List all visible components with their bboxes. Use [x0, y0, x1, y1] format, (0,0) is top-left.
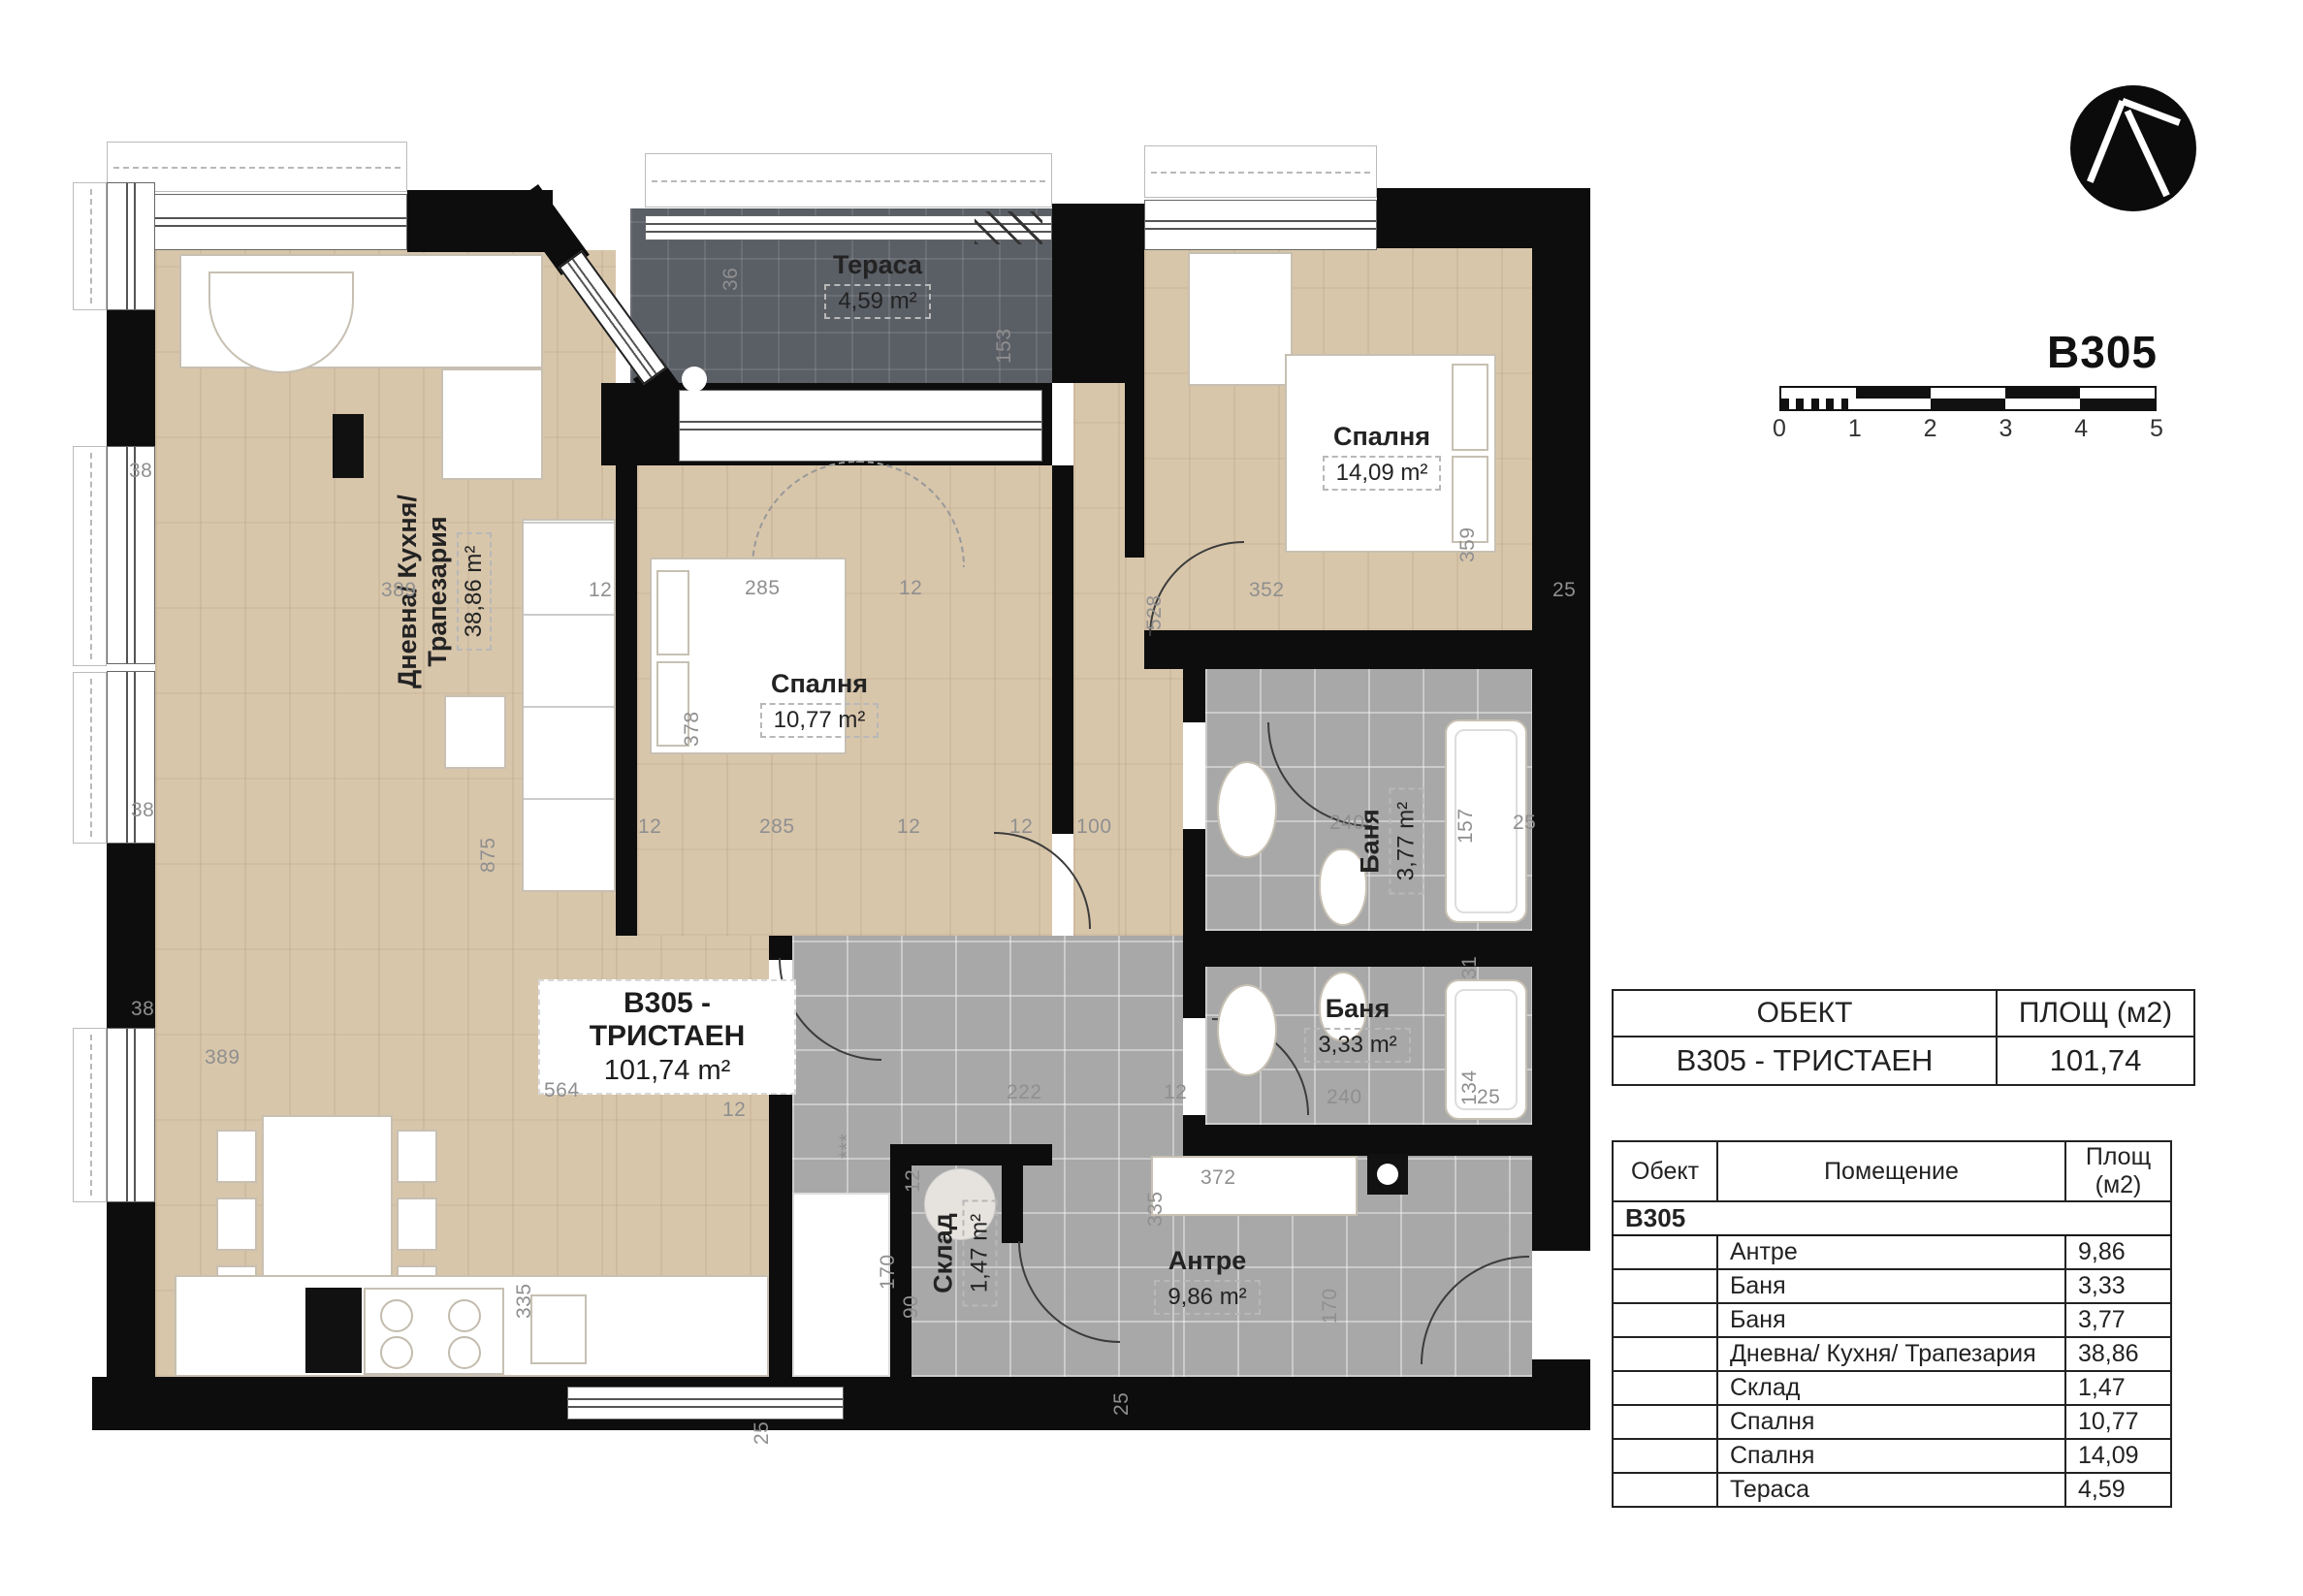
rooms-table-row: Баня3,77 — [1613, 1303, 2171, 1337]
bedroom-right-window — [1144, 200, 1377, 250]
dimension-label: 36 — [720, 268, 741, 291]
burner-icon — [380, 1299, 413, 1332]
wall — [769, 1062, 792, 1377]
dimension-label: 359 — [1457, 527, 1478, 562]
wall — [1052, 465, 1073, 834]
dimension-label: 170 — [1320, 1288, 1340, 1324]
rooms-header-area: Площ (м2) — [2065, 1141, 2171, 1201]
dimension-label: 38 — [131, 999, 154, 1019]
shaft-circle — [1377, 1164, 1398, 1185]
rooms-cell-name: Антре — [1717, 1235, 2065, 1269]
rooms-cell-object — [1613, 1405, 1717, 1439]
dimension-label: 25 — [1477, 1087, 1500, 1107]
summary-header-area: ПЛОЩ (м2) — [1997, 990, 2194, 1037]
dimension-label: 372 — [1200, 1167, 1236, 1188]
window — [107, 1028, 155, 1202]
room-name: Баня — [1251, 994, 1464, 1024]
rooms-cell-object — [1613, 1439, 1717, 1473]
room-name: Спалня — [1236, 422, 1527, 452]
dimension-label: 12 — [1164, 1082, 1187, 1102]
chair — [216, 1197, 257, 1251]
dimension-label: 240 — [1327, 1087, 1362, 1107]
burner-icon — [448, 1336, 481, 1369]
chair — [216, 1130, 257, 1183]
dimension-label: 389 — [205, 1047, 240, 1068]
dimension-label: 157 — [1455, 808, 1476, 844]
wall — [1144, 630, 1532, 669]
rooms-cell-name: Баня — [1717, 1303, 2065, 1337]
dimension-label: 12 — [897, 816, 920, 837]
rooms-cell-name: Тераса — [1717, 1473, 2065, 1507]
dimension-label: 12 — [638, 816, 661, 837]
dimension-label: 12 — [1009, 816, 1033, 837]
rooms-cell-area: 3,33 — [2065, 1269, 2171, 1303]
room-name: Спалня — [698, 669, 941, 699]
corridor-floor — [1073, 383, 1125, 936]
hall-wardrobe — [1151, 1156, 1358, 1216]
dimension-label: 378 — [682, 711, 702, 747]
dimension-label: 12 — [899, 578, 922, 598]
dimension-label: 240 — [1329, 813, 1365, 833]
room-area: 3,77 m² — [1390, 788, 1424, 894]
shaft — [1367, 1154, 1408, 1195]
window-sill — [73, 182, 107, 310]
floorplan-page: Тераса 4,59 m² Спалня 14,09 m² Спалня 10… — [0, 0, 2303, 1596]
plinth-vent — [567, 1387, 844, 1420]
pantry-niche — [792, 1193, 890, 1377]
room-area: 10,77 m² — [760, 703, 880, 738]
dimension-label: 90 — [901, 1295, 921, 1319]
wall — [107, 1202, 155, 1382]
dimension-label: 153 — [994, 328, 1014, 364]
dimension-label: 12 — [903, 1169, 923, 1193]
dimension-label: 25 — [1111, 1392, 1132, 1416]
rooms-group-label: B305 — [1613, 1201, 2171, 1235]
rooms-cell-object — [1613, 1337, 1717, 1371]
wall — [1052, 204, 1144, 383]
rooms-cell-area: 9,86 — [2065, 1235, 2171, 1269]
scale-tick-label: 0 — [1773, 415, 1786, 443]
room-label-bath-upper: Баня 3,77 m² — [1356, 764, 1457, 919]
wall — [890, 1144, 1052, 1165]
rooms-cell-object — [1613, 1371, 1717, 1405]
rooms-cell-area: 3,77 — [2065, 1303, 2171, 1337]
peak-circle-logo-icon — [2068, 83, 2198, 213]
rooms-table-row: Склад1,47 — [1613, 1371, 2171, 1405]
kitchen-flue — [333, 414, 364, 478]
rooms-header-object: Обект — [1613, 1141, 1717, 1201]
wall — [1183, 1125, 1532, 1156]
summary-table: ОБЕКТ ПЛОЩ (м2) B305 - ТРИСТАЕН 101,74 — [1612, 989, 2195, 1086]
dimension-label: 100 — [1076, 816, 1112, 837]
room-area: 38,86 m² — [457, 532, 492, 652]
summary-header-object: ОБЕКТ — [1613, 990, 1997, 1037]
scale-bar-ticks: 012345 — [1779, 415, 2157, 444]
entry-door-gap — [1532, 1251, 1590, 1359]
scale-tick-label: 4 — [2074, 415, 2088, 443]
scale-tick-label: 3 — [1999, 415, 2012, 443]
dimension-label: 25 — [752, 1421, 772, 1445]
dimension-label: 31 — [1459, 956, 1480, 979]
rooms-cell-name: Спалня — [1717, 1439, 2065, 1473]
scale-bar-row-bottom — [1781, 399, 2155, 409]
oven — [305, 1288, 362, 1373]
scale-tick-label: 1 — [1848, 415, 1862, 443]
rooms-cell-name: Склад — [1717, 1371, 2065, 1405]
room-area: 1,47 m² — [963, 1200, 998, 1306]
room-name: Склад — [929, 1171, 959, 1336]
dimension-label: 12 — [722, 1100, 746, 1120]
window — [107, 182, 155, 310]
unit-title: B305 — [1973, 326, 2158, 378]
scale-tick-label: 2 — [1924, 415, 1937, 443]
rooms-table-row: Антре9,86 — [1613, 1235, 2171, 1269]
wall — [769, 936, 792, 960]
room-label-hall: Антре 9,86 m² — [1081, 1246, 1333, 1315]
dimension-label: 38 — [131, 800, 154, 820]
pillow — [656, 570, 689, 655]
room-name: Антре — [1081, 1246, 1333, 1276]
scale-bar — [1779, 386, 2157, 411]
room-area: 9,86 m² — [1154, 1280, 1260, 1315]
dimension-label: 25 — [1513, 813, 1536, 833]
wall — [1532, 188, 1590, 1251]
rooms-cell-name: Баня — [1717, 1269, 2065, 1303]
rooms-cell-area: 14,09 — [2065, 1439, 2171, 1473]
rooms-cell-area: 38,86 — [2065, 1337, 2171, 1371]
rooms-cell-object — [1613, 1303, 1717, 1337]
wall — [1183, 669, 1205, 722]
unit-area: 101,74 m² — [550, 1055, 784, 1087]
window-sill — [73, 672, 107, 844]
dimension-label: 389 — [381, 580, 417, 600]
chair — [397, 1197, 437, 1251]
rooms-table: Обект Помещение Площ (м2) B305 Антре9,86… — [1612, 1140, 2172, 1508]
railing-hatch-marks — [975, 211, 1042, 244]
room-area: 4,59 m² — [824, 284, 930, 319]
window-sill — [645, 153, 1052, 207]
summary-unit-name: B305 - ТРИСТАЕН — [1613, 1037, 1997, 1085]
chair — [397, 1130, 437, 1183]
rooms-cell-object — [1613, 1235, 1717, 1269]
rooms-table-row: Тераса4,59 — [1613, 1473, 2171, 1507]
rooms-table-row: Дневна/ Кухня/ Трапезария38,86 — [1613, 1337, 2171, 1371]
summary-unit-area: 101,74 — [1997, 1037, 2194, 1085]
wall — [616, 465, 637, 936]
dimension-label: 170 — [878, 1254, 898, 1290]
scale-tick-label: 5 — [2150, 415, 2163, 443]
burner-icon — [380, 1336, 413, 1369]
scale-bar-row-top — [1781, 388, 2155, 399]
rooms-cell-area: 1,47 — [2065, 1371, 2171, 1405]
room-label-bedroom-right: Спалня 14,09 m² — [1236, 422, 1527, 491]
dimension-label: *** — [837, 1133, 857, 1159]
window-sill — [73, 1028, 107, 1202]
dimension-label: 528 — [1144, 594, 1165, 630]
room-name: Баня — [1356, 764, 1386, 919]
dimension-label: 25 — [1552, 580, 1576, 600]
rooms-cell-area: 4,59 — [2065, 1473, 2171, 1507]
rooms-cell-area: 10,77 — [2065, 1405, 2171, 1439]
dimension-label: 285 — [759, 816, 795, 837]
dimension-label: 875 — [478, 837, 498, 873]
closet — [522, 519, 616, 892]
unit-name: B305 - ТРИСТАЕН — [550, 987, 784, 1053]
dimension-label: 12 — [589, 580, 612, 600]
terrace-sliding-door — [679, 390, 1042, 462]
room-label-bath-lower: Баня 3,33 m² — [1251, 994, 1464, 1063]
rooms-header-room: Помещение — [1717, 1141, 2065, 1201]
room-label-storage: Склад 1,47 m² — [929, 1171, 1021, 1336]
dimension-label: 564 — [544, 1080, 580, 1101]
dimension-label: 222 — [1007, 1082, 1042, 1102]
dimension-label: 335 — [514, 1283, 534, 1319]
rooms-cell-name: Спалня — [1717, 1405, 2065, 1439]
wall — [1377, 188, 1532, 248]
room-label-bedroom-mid: Спалня 10,77 m² — [698, 669, 941, 738]
rooms-table-row: Баня3,33 — [1613, 1269, 2171, 1303]
dimension-label: 285 — [745, 578, 781, 598]
wall — [1125, 383, 1144, 558]
dimension-label: 335 — [1145, 1191, 1166, 1227]
wall — [1183, 829, 1205, 1018]
dimension-label: 38 — [129, 461, 152, 481]
rooms-table-row: Спалня10,77 — [1613, 1405, 2171, 1439]
burner-icon — [448, 1299, 481, 1332]
terrace-drain — [682, 367, 707, 392]
rooms-table-row: Спалня14,09 — [1613, 1439, 2171, 1473]
dimension-label: 352 — [1249, 580, 1285, 600]
wall — [107, 310, 155, 446]
rooms-cell-name: Дневна/ Кухня/ Трапезария — [1717, 1337, 2065, 1371]
floorplan-canvas: Тераса 4,59 m² Спалня 14,09 m² Спалня 10… — [73, 126, 1615, 1517]
room-label-terrace: Тераса 4,59 m² — [752, 250, 1004, 319]
kitchen-sink — [530, 1294, 587, 1364]
wardrobe — [1188, 252, 1293, 386]
sink-oval — [1217, 761, 1277, 858]
room-area: 3,33 m² — [1304, 1028, 1410, 1063]
unit-label: B305 - ТРИСТАЕН 101,74 m² — [538, 979, 796, 1095]
stove — [364, 1288, 504, 1375]
room-name: Тераса — [752, 250, 1004, 280]
rooms-cell-object — [1613, 1473, 1717, 1507]
rooms-cell-object — [1613, 1269, 1717, 1303]
room-area: 14,09 m² — [1323, 456, 1442, 491]
window-sill — [1144, 145, 1377, 198]
window-sill — [73, 446, 107, 666]
